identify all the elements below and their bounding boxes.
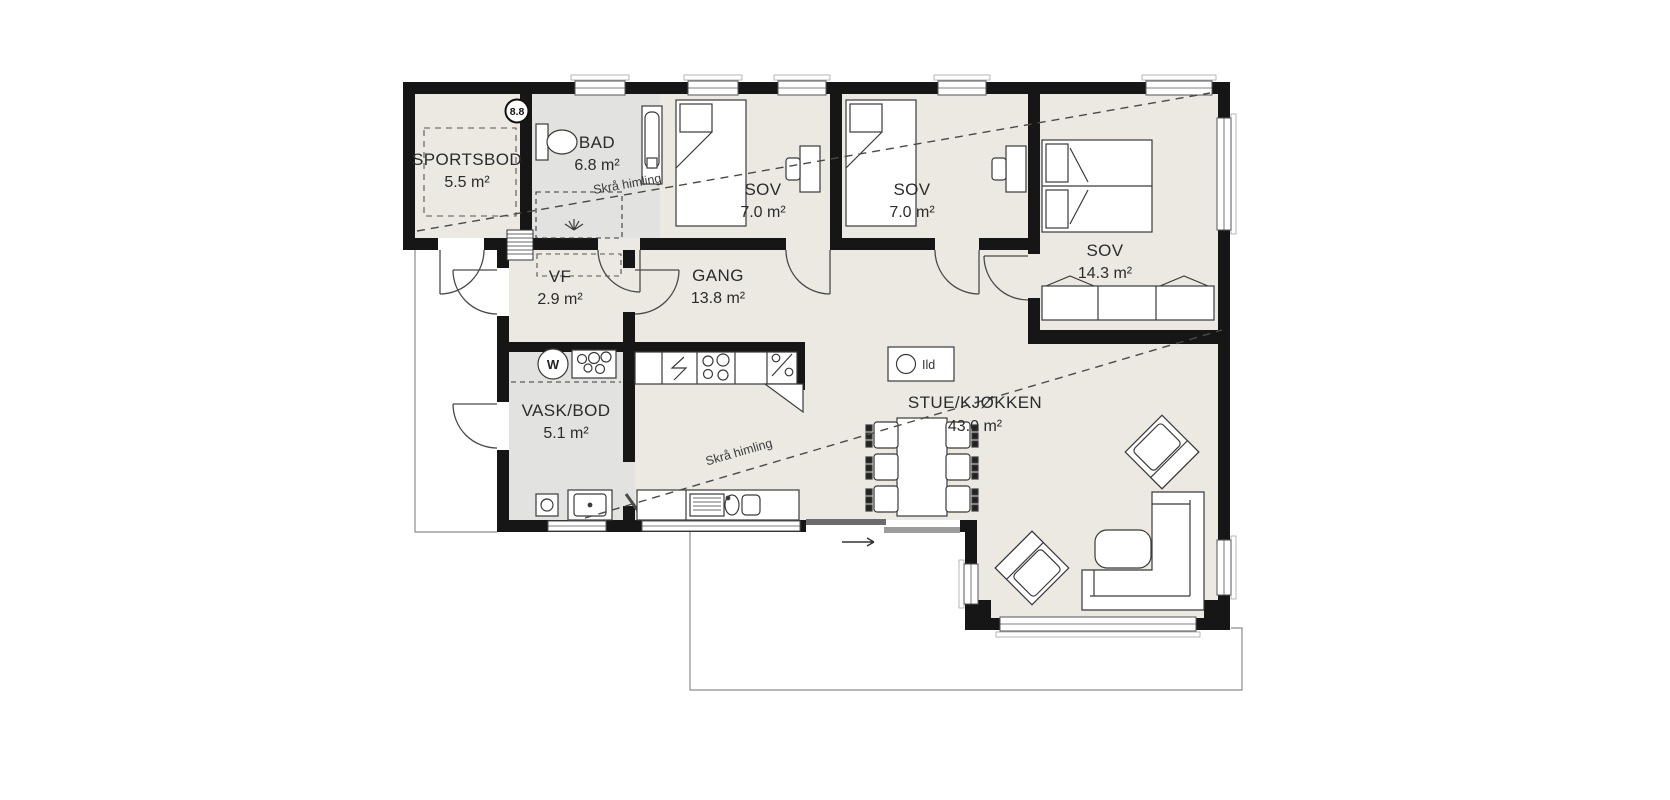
kitchen-counter-bottom: [637, 490, 799, 520]
room-area-vf: 2.9 m²: [537, 291, 583, 308]
ceiling-height-badge: 8.8: [506, 100, 529, 123]
fireplace: Ild: [888, 347, 954, 381]
window-sov1-b: [774, 75, 830, 95]
window-bad: [571, 75, 629, 95]
chair-2: [992, 158, 1006, 180]
room-label-sov1: SOV: [744, 180, 781, 199]
room-area-sportsbod: 5.5 m²: [444, 174, 490, 191]
opening-sov1: [786, 238, 830, 250]
window-vask-bottom: [548, 521, 606, 531]
window-kitchen-bottom: [642, 521, 800, 531]
opening-sov3: [1028, 254, 1040, 298]
dining-table: [897, 418, 947, 516]
room-label-sov3: SOV: [1086, 241, 1123, 260]
laundry-appliance-icon: [572, 350, 616, 378]
wall-kitchen-peninsula: [635, 342, 805, 352]
door-vask-entry: [453, 404, 497, 448]
wall-sov3-bottom: [1028, 330, 1230, 344]
opening-sportsbod: [438, 238, 484, 250]
room-area-sov1: 7.0 m²: [740, 204, 786, 221]
fireplace-label: Ild: [922, 358, 935, 372]
opening-vask-entry: [497, 402, 509, 450]
sliding-direction-arrow-icon: [842, 538, 874, 546]
wall-sov1-sov2: [830, 82, 842, 250]
window-stue-left: [959, 560, 978, 608]
room-area-bad: 6.8 m²: [574, 157, 620, 174]
chimney-shaft-icon: [507, 230, 533, 260]
floor-drain-icon: [536, 494, 558, 516]
opening-vf-entry: [497, 268, 509, 316]
room-label-vask-bod: VASK/BOD: [522, 401, 611, 420]
window-stue-right: [1217, 536, 1236, 599]
room-area-sov3: 14.3 m²: [1078, 265, 1133, 282]
chair-1: [786, 158, 800, 180]
sliding-door: [806, 519, 960, 546]
opening-sov2: [935, 238, 979, 250]
room-area-vask-bod: 5.1 m²: [543, 425, 589, 442]
washing-machine-letter: W: [547, 357, 560, 372]
window-sov1-a: [684, 75, 742, 95]
coffee-table: [1095, 530, 1151, 568]
room-area-gang: 13.8 m²: [691, 290, 746, 307]
ceiling-height-badge-text: 8.8: [510, 106, 525, 118]
wall-corner-block-2: [1204, 600, 1230, 630]
sliding-door-leaf-2: [884, 527, 960, 533]
room-label-sportsbod: SPORTSBOD: [412, 150, 522, 169]
room-area-sov2: 7.0 m²: [889, 204, 935, 221]
window-sov2: [934, 75, 990, 95]
washing-machine-icon: W: [538, 349, 568, 379]
room-label-vf: VF: [549, 267, 572, 286]
window-sov3-top: [1142, 75, 1216, 95]
window-stue-bottom: [996, 617, 1200, 637]
desk-1: [800, 146, 820, 192]
floor-plan-drawing: W: [0, 0, 1670, 800]
wall-sov2-sov3: [1028, 82, 1040, 250]
bed-double: [1042, 140, 1152, 232]
desk-2: [1006, 146, 1026, 192]
bed-single-1: [676, 100, 746, 226]
opening-bad: [598, 238, 640, 250]
room-label-gang: GANG: [692, 266, 744, 285]
room-area-stue-kjokken: 43.0 m²: [948, 418, 1003, 435]
room-label-stue-kjokken: STUE/KJØKKEN: [908, 393, 1042, 412]
dining-chairs-right: [946, 422, 978, 512]
door-sportsbod: [440, 250, 484, 294]
room-label-bad: BAD: [579, 133, 615, 152]
laundry-sink-icon: [568, 490, 612, 520]
floor-plan-page: W: [0, 0, 1670, 800]
sliding-door-leaf-1: [806, 519, 886, 525]
room-label-sov2: SOV: [893, 180, 930, 199]
window-sov3-right: [1217, 114, 1236, 234]
porch-outline: [415, 250, 497, 532]
dining-chairs-left: [866, 422, 898, 512]
